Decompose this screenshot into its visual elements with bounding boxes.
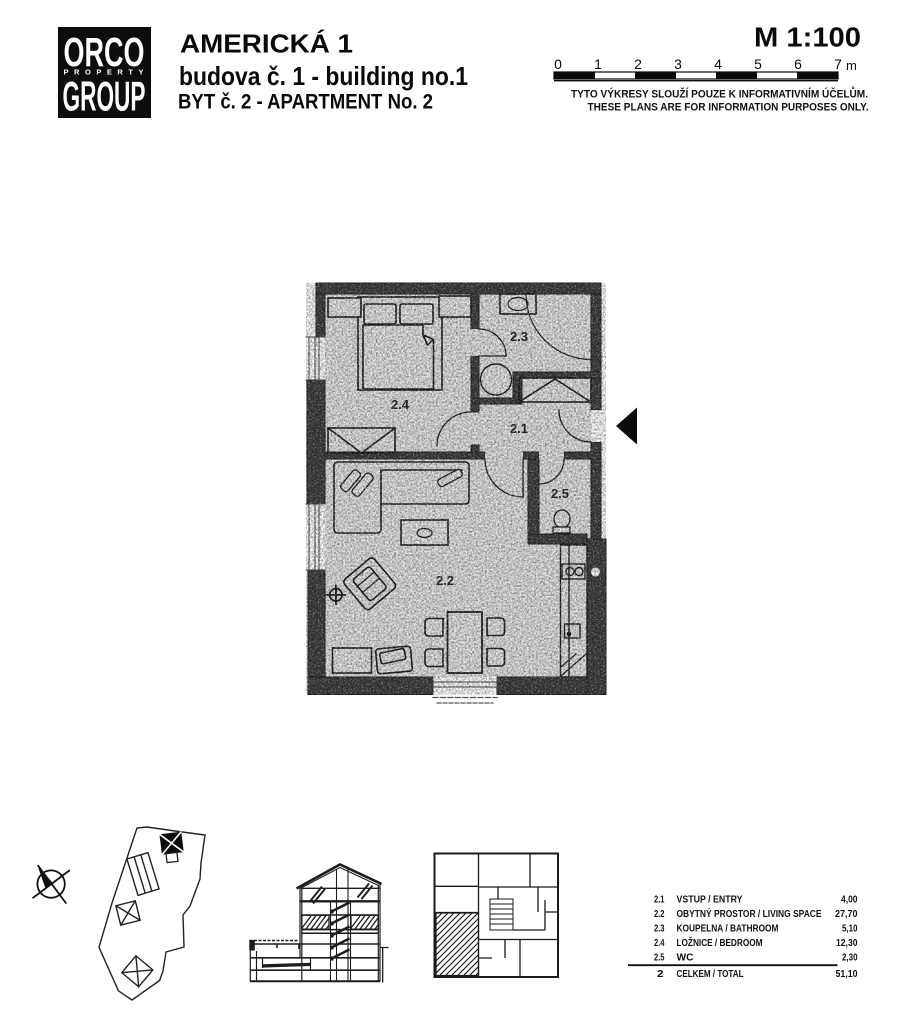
svg-text:1: 1 xyxy=(594,56,602,72)
svg-text:LOŽNICE / BEDROOM: LOŽNICE / BEDROOM xyxy=(677,936,763,949)
svg-text:KOUPELNA / BATHROOM: KOUPELNA / BATHROOM xyxy=(677,923,779,935)
svg-text:BYT č. 2 - APARTMENT No. 2: BYT č. 2 - APARTMENT No. 2 xyxy=(178,91,433,114)
svg-text:2.1: 2.1 xyxy=(654,894,665,906)
svg-text:2,30: 2,30 xyxy=(842,952,858,964)
svg-text:4,00: 4,00 xyxy=(841,894,858,906)
svg-text:6: 6 xyxy=(794,56,802,72)
svg-text:THESE PLANS ARE FOR INFORMATIO: THESE PLANS ARE FOR INFORMATION PURPOSES… xyxy=(588,102,869,114)
svg-text:4: 4 xyxy=(714,56,722,72)
svg-text:M 1:100: M 1:100 xyxy=(754,22,861,53)
svg-text:OBYTNÝ PROSTOR / LIVING SPACE: OBYTNÝ PROSTOR / LIVING SPACE xyxy=(677,907,822,920)
svg-text:5: 5 xyxy=(754,56,762,72)
svg-text:51,10: 51,10 xyxy=(836,968,858,980)
svg-text:GROUP: GROUP xyxy=(63,73,146,120)
svg-text:TYTO VÝKRESY SLOUŽÍ POUZE K IN: TYTO VÝKRESY SLOUŽÍ POUZE K INFORMATIVNÍ… xyxy=(571,87,868,101)
svg-text:2: 2 xyxy=(657,968,664,980)
svg-text:2: 2 xyxy=(634,56,642,72)
svg-text:WC: WC xyxy=(677,952,694,964)
svg-text:CELKEM / TOTAL: CELKEM / TOTAL xyxy=(677,968,744,980)
svg-text:12,30: 12,30 xyxy=(836,937,858,949)
svg-text:m: m xyxy=(846,58,857,73)
svg-text:2.4: 2.4 xyxy=(654,937,665,949)
svg-text:2.3: 2.3 xyxy=(654,923,665,935)
svg-text:budova č. 1 - building no.1: budova č. 1 - building no.1 xyxy=(179,61,468,91)
svg-text:2.2: 2.2 xyxy=(654,908,665,920)
svg-text:0: 0 xyxy=(554,56,562,72)
svg-text:2.5: 2.5 xyxy=(654,952,665,964)
svg-text:3: 3 xyxy=(674,56,682,72)
svg-text:5,10: 5,10 xyxy=(842,923,858,935)
svg-text:AMERICKÁ 1: AMERICKÁ 1 xyxy=(180,29,353,59)
svg-text:7: 7 xyxy=(834,56,842,72)
svg-text:27,70: 27,70 xyxy=(835,908,858,920)
svg-text:VSTUP / ENTRY: VSTUP / ENTRY xyxy=(677,894,743,906)
